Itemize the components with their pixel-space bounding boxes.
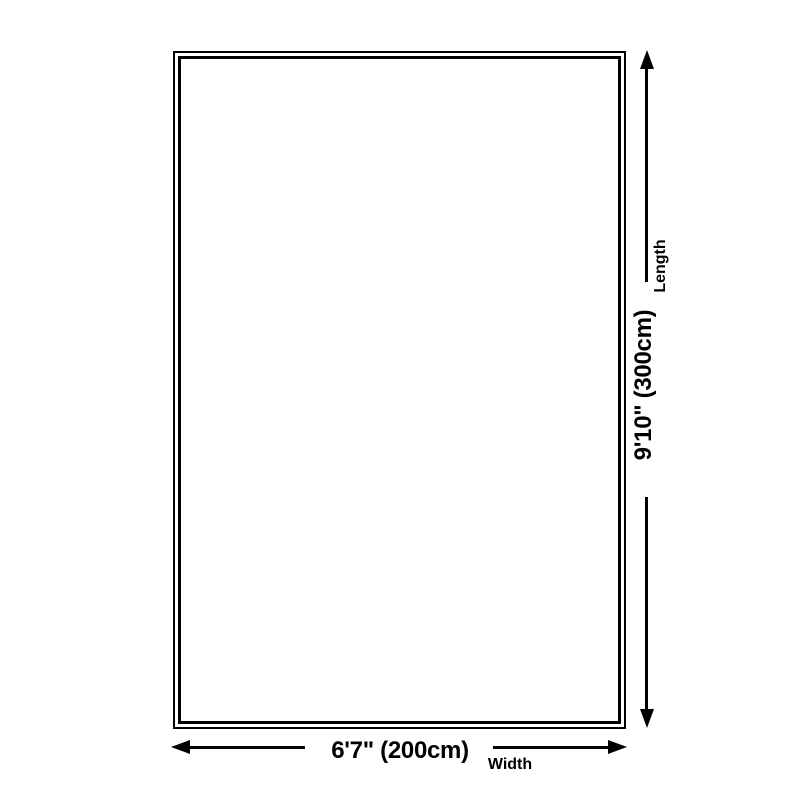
arrow-right-icon [608, 740, 627, 754]
length-label: Length [653, 239, 669, 292]
arrow-down-icon [640, 709, 654, 728]
rug-outline [173, 51, 626, 729]
length-arrow-top-line [645, 62, 648, 282]
rug-outline-inner [178, 56, 621, 724]
width-value: 6'7" (200cm) [331, 739, 469, 763]
length-value: 9'10" (300cm) [632, 310, 656, 461]
length-arrow-bottom-line [645, 497, 648, 715]
width-label: Width [488, 757, 532, 773]
rug-size-diagram: Length 9'10" (300cm) 6'7" (200cm) Width [0, 0, 800, 800]
width-arrow-left-line [184, 746, 305, 749]
width-arrow-right-line [493, 746, 614, 749]
